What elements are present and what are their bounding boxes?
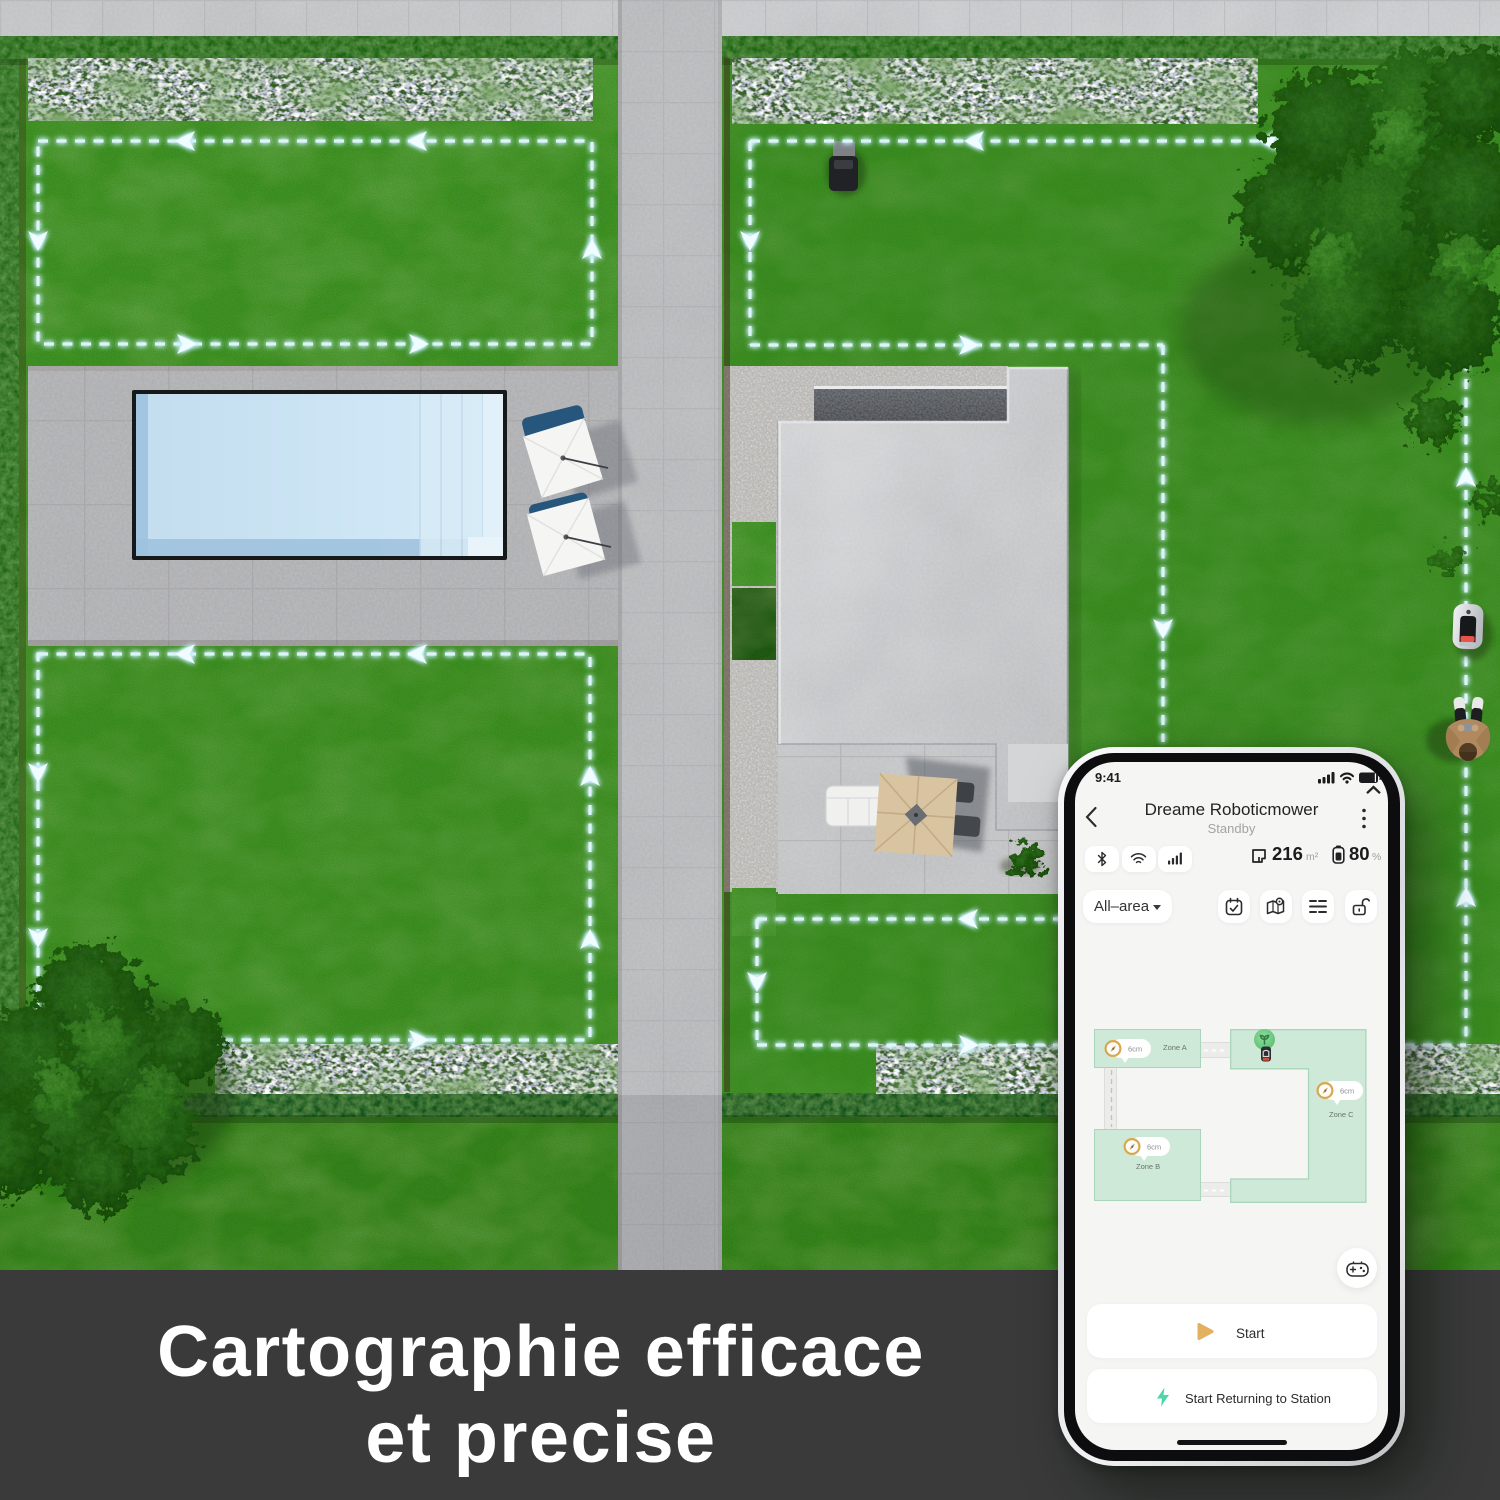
svg-text:6cm: 6cm xyxy=(1147,1143,1161,1152)
svg-text:6cm: 6cm xyxy=(1340,1087,1354,1096)
svg-text:6cm: 6cm xyxy=(1128,1045,1142,1054)
